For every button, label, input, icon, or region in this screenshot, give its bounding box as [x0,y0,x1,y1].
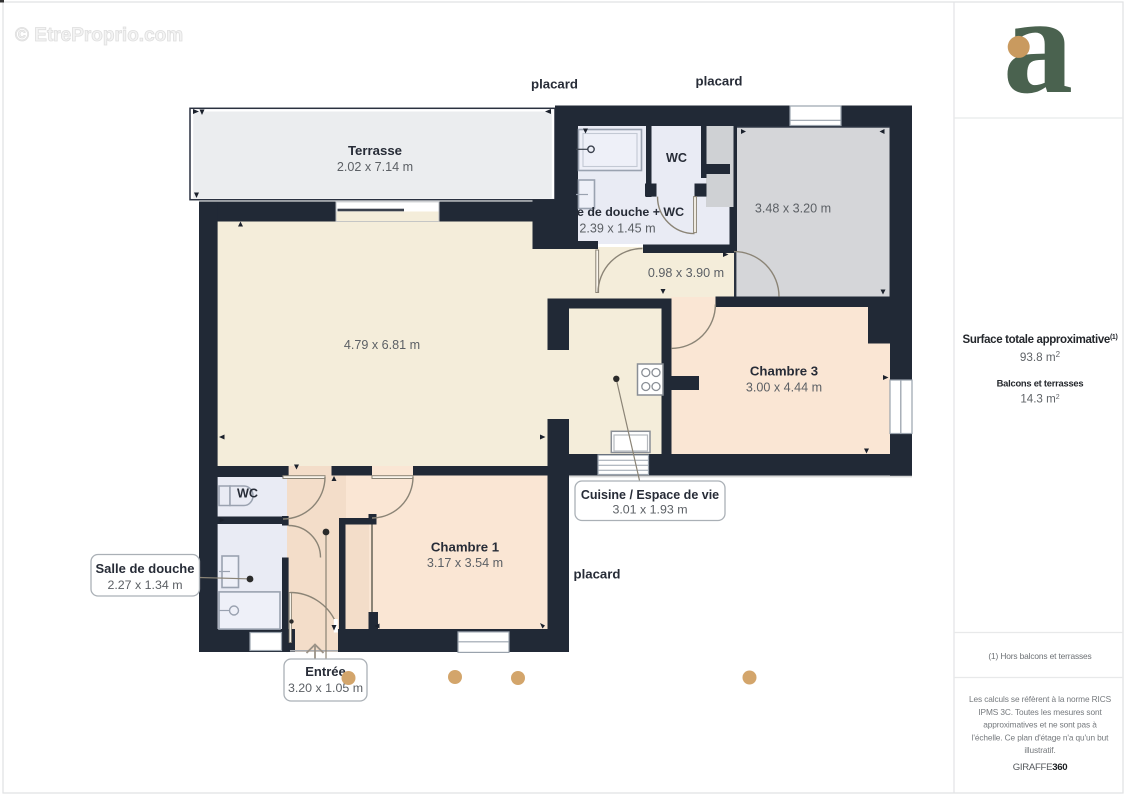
svg-text:2.27 x 1.34 m: 2.27 x 1.34 m [107,578,182,592]
svg-text:93.8 m2: 93.8 m2 [1020,350,1061,364]
svg-text:placard: placard [531,77,578,92]
svg-text:2.39 x 1.45 m: 2.39 x 1.45 m [579,222,655,236]
svg-text:GIRAFFE360: GIRAFFE360 [1013,762,1068,773]
svg-text:l'échelle. Ce plan d'étage n'a: l'échelle. Ce plan d'étage n'a qu'un but [972,732,1110,742]
svg-text:a: a [1003,0,1073,123]
svg-text:(1) Hors balcons et terrasses: (1) Hors balcons et terrasses [988,651,1091,661]
svg-text:e de douche + WC: e de douche + WC [577,205,684,219]
svg-text:Terrasse: Terrasse [348,143,402,158]
svg-text:Salle de douche: Salle de douche [96,561,195,576]
svg-text:3.01 x 1.93 m: 3.01 x 1.93 m [612,503,687,517]
svg-text:Surface totale approximative(1: Surface totale approximative(1) [963,334,1118,346]
svg-text:Entrée: Entrée [305,664,345,679]
svg-text:2.02 x 7.14 m: 2.02 x 7.14 m [337,160,413,174]
svg-text:© EtreProprio.com: © EtreProprio.com [15,25,183,46]
svg-text:3.00 x 4.44 m: 3.00 x 4.44 m [746,381,822,395]
svg-text:4.79 x 6.81 m: 4.79 x 6.81 m [344,338,420,352]
svg-text:placard: placard [696,74,743,89]
svg-text:Chambre 1: Chambre 1 [431,540,499,555]
svg-text:14.3 m2: 14.3 m2 [1020,393,1059,406]
svg-text:3.17 x 3.54 m: 3.17 x 3.54 m [427,556,503,570]
svg-text:Balcons et terrasses: Balcons et terrasses [997,378,1084,389]
svg-text:Chambre 3: Chambre 3 [750,364,818,379]
svg-text:3.48 x 3.20 m: 3.48 x 3.20 m [755,202,831,216]
svg-text:Les calculs se réfèrent à la n: Les calculs se réfèrent à la norme RICS [969,694,1112,704]
svg-text:WC: WC [666,151,687,165]
svg-text:0.98 x 3.90 m: 0.98 x 3.90 m [648,266,724,280]
svg-text:IPMS 3C. Toutes les mesures so: IPMS 3C. Toutes les mesures sont [978,707,1102,717]
svg-text:placard: placard [574,567,621,582]
svg-text:approximatives et ne sont pas: approximatives et ne sont pas à [983,720,1097,730]
svg-text:Cuisine / Espace de vie: Cuisine / Espace de vie [581,488,719,502]
svg-text:WC: WC [237,487,258,501]
svg-text:illustratif.: illustratif. [1024,745,1055,755]
